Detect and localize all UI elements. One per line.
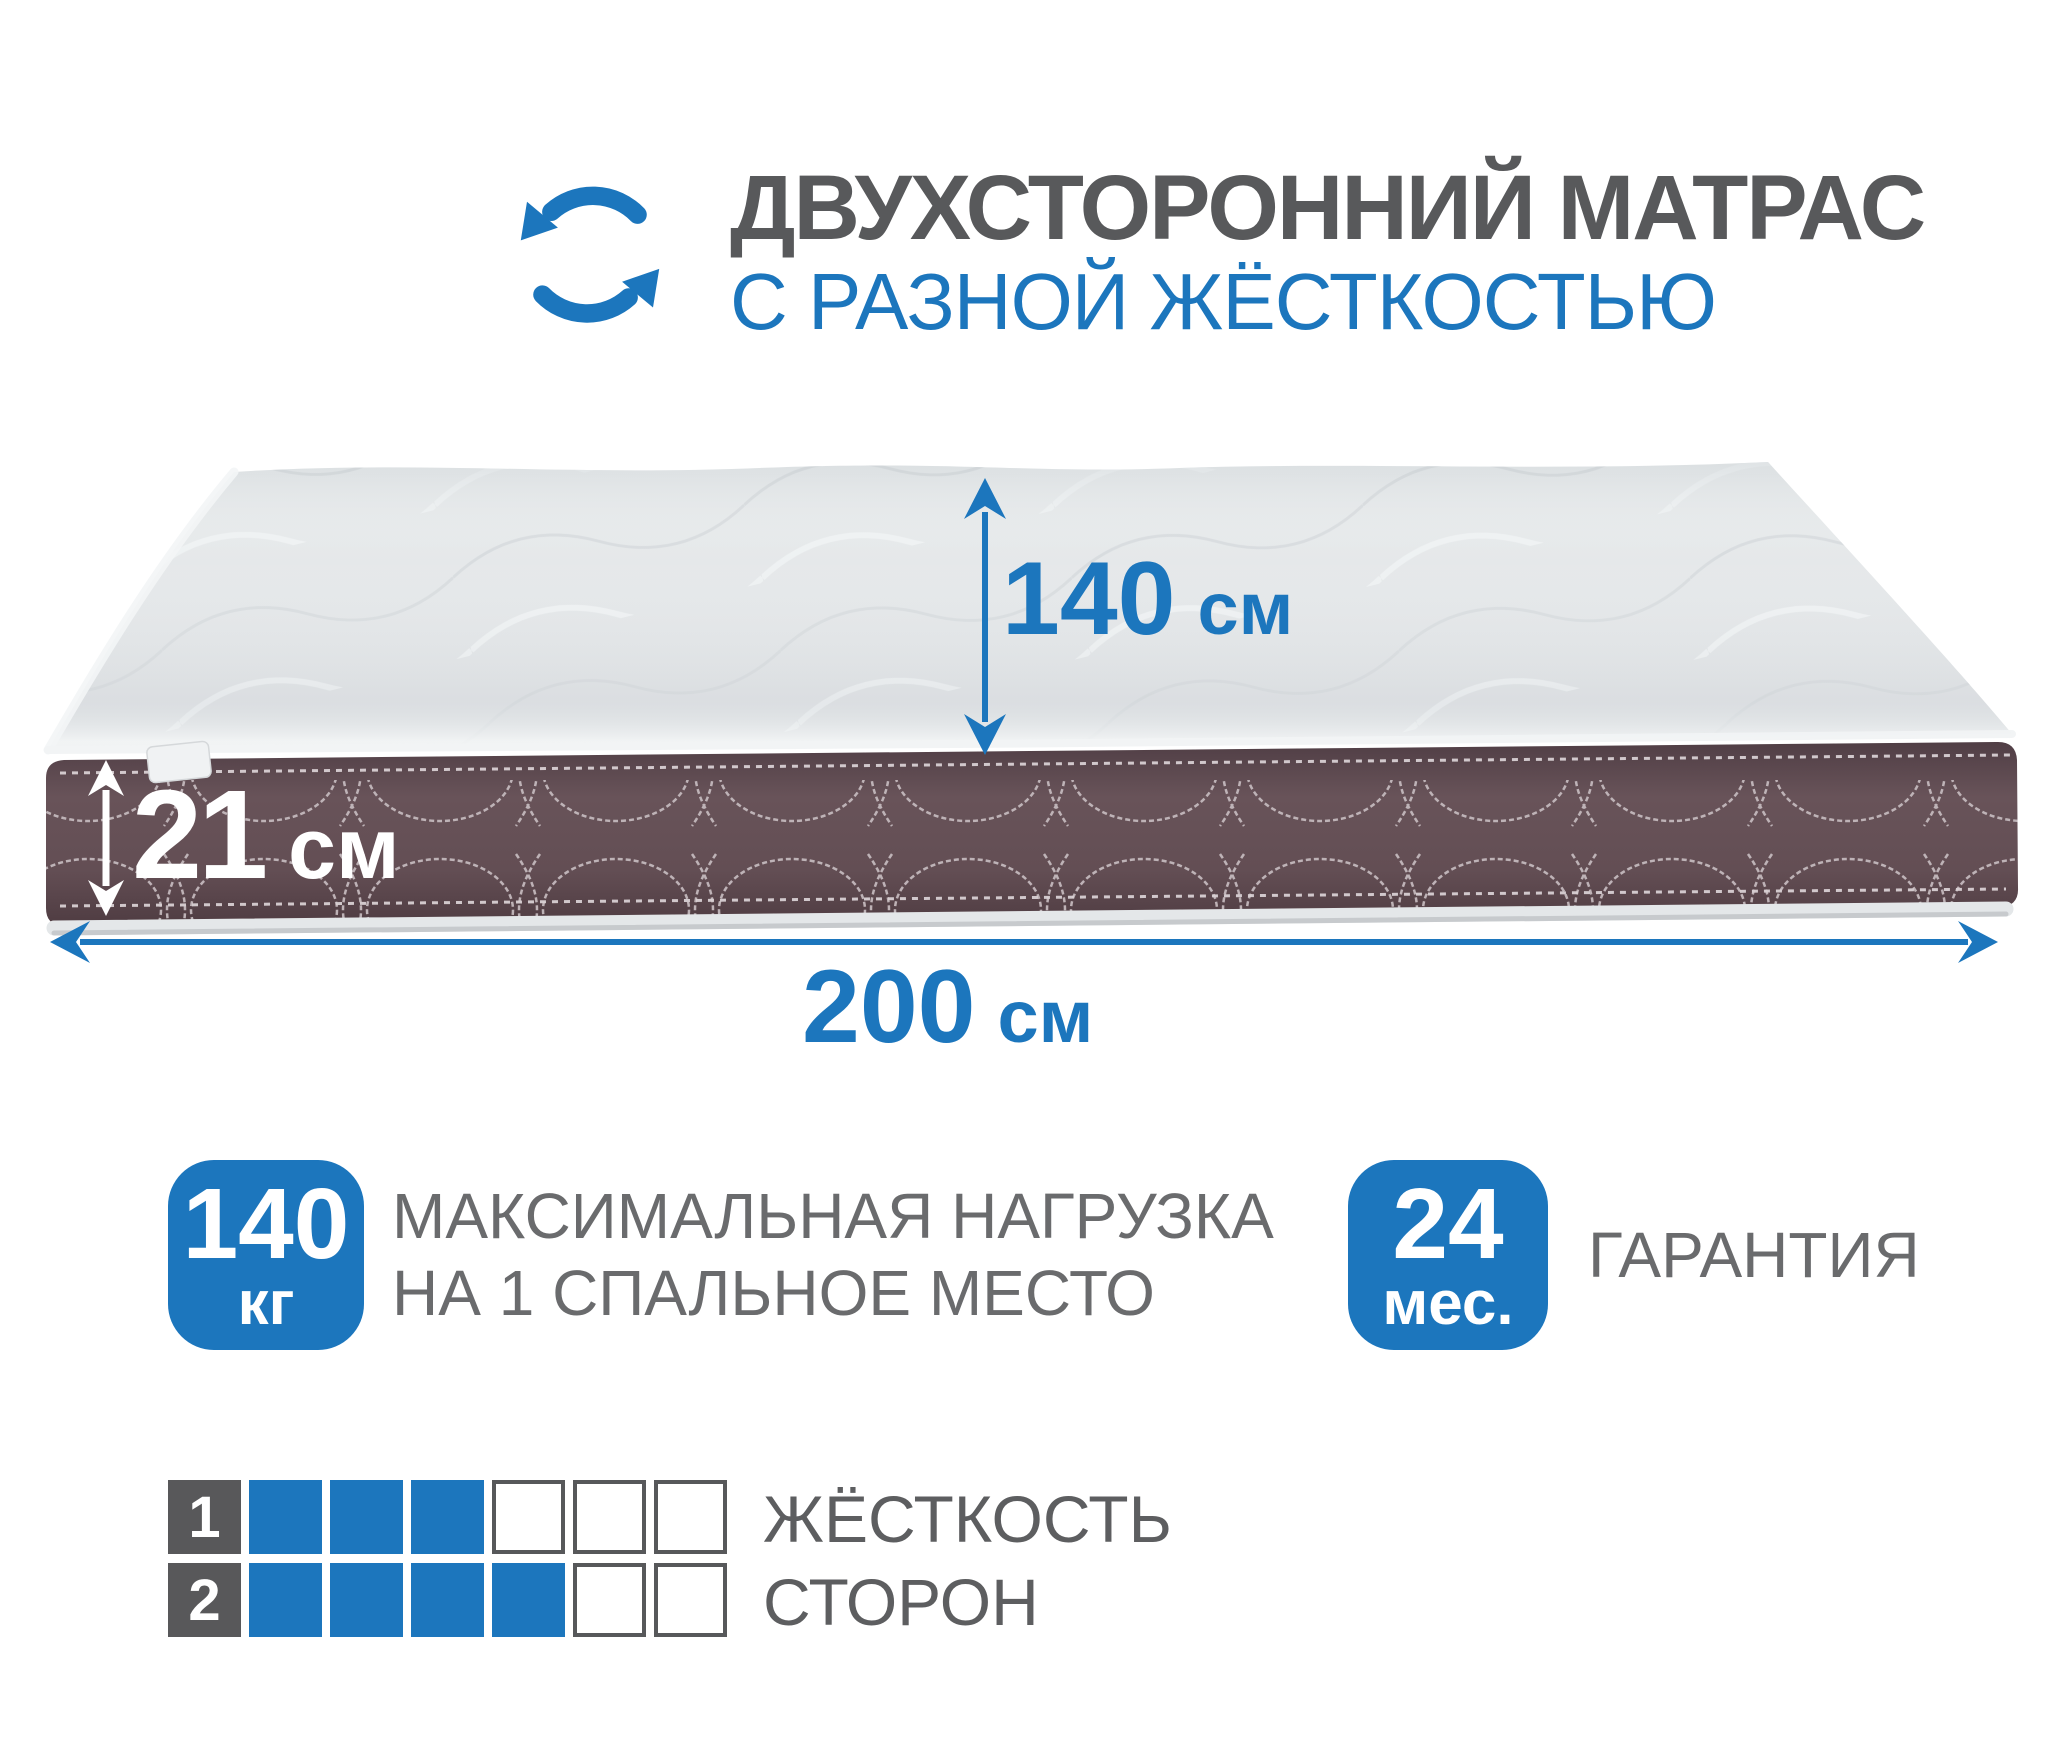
warranty-value: 24 xyxy=(1392,1175,1503,1273)
firmness-cell-empty xyxy=(573,1480,646,1554)
width-value: 140 xyxy=(1002,540,1176,659)
warranty-unit: мес. xyxy=(1382,1273,1513,1335)
max-load-description: МАКСИМАЛЬНАЯ НАГРУЗКА НА 1 СПАЛЬНОЕ МЕСТ… xyxy=(392,1178,1274,1332)
firmness-grid: 12 xyxy=(168,1480,727,1637)
height-value: 21 xyxy=(132,762,264,907)
width-dimension-label: 140 см xyxy=(1002,540,1293,659)
max-load-value: 140 xyxy=(183,1175,350,1273)
height-unit: см xyxy=(288,800,399,899)
firmness-row: 1 xyxy=(168,1480,727,1554)
max-load-badge: 140 кг xyxy=(168,1160,364,1350)
firmness-cell-filled xyxy=(492,1563,565,1637)
firmness-side-number: 2 xyxy=(168,1563,241,1637)
warranty-badge: 24 мес. xyxy=(1348,1160,1548,1350)
firmness-label: ЖЁСТКОСТЬ СТОРОН xyxy=(763,1478,1172,1644)
firmness-cell-filled xyxy=(249,1480,322,1554)
firmness-cell-filled xyxy=(330,1563,403,1637)
page-title: ДВУХСТОРОННИЙ МАТРАС xyxy=(730,160,1924,256)
firmness-side-number: 1 xyxy=(168,1480,241,1554)
rotate-icon xyxy=(505,174,675,342)
firmness-cell-filled xyxy=(249,1563,322,1637)
firmness-label-line1: ЖЁСТКОСТЬ xyxy=(763,1478,1172,1561)
firmness-row: 2 xyxy=(168,1563,727,1637)
header: ДВУХСТОРОННИЙ МАТРАС С РАЗНОЙ ЖЁСТКОСТЬЮ xyxy=(505,160,1924,348)
firmness-cell-filled xyxy=(411,1563,484,1637)
firmness-cell-empty xyxy=(654,1480,727,1554)
page-subtitle: С РАЗНОЙ ЖЁСТКОСТЬЮ xyxy=(730,256,1924,348)
firmness-cell-filled xyxy=(411,1480,484,1554)
max-load-description-line2: НА 1 СПАЛЬНОЕ МЕСТО xyxy=(392,1255,1274,1332)
warranty-label: ГАРАНТИЯ xyxy=(1588,1217,1920,1294)
length-value: 200 xyxy=(802,948,976,1067)
firmness-label-line2: СТОРОН xyxy=(763,1561,1172,1644)
firmness-cell-empty xyxy=(654,1563,727,1637)
length-unit: см xyxy=(998,974,1094,1059)
height-dimension-label: 21 см xyxy=(132,762,400,907)
firmness-cell-empty xyxy=(492,1480,565,1554)
max-load-unit: кг xyxy=(238,1273,295,1335)
firmness-cell-filled xyxy=(330,1480,403,1554)
firmness-cell-empty xyxy=(573,1563,646,1637)
width-unit: см xyxy=(1198,566,1294,651)
length-dimension-label: 200 см xyxy=(802,948,1093,1067)
max-load-description-line1: МАКСИМАЛЬНАЯ НАГРУЗКА xyxy=(392,1178,1274,1255)
